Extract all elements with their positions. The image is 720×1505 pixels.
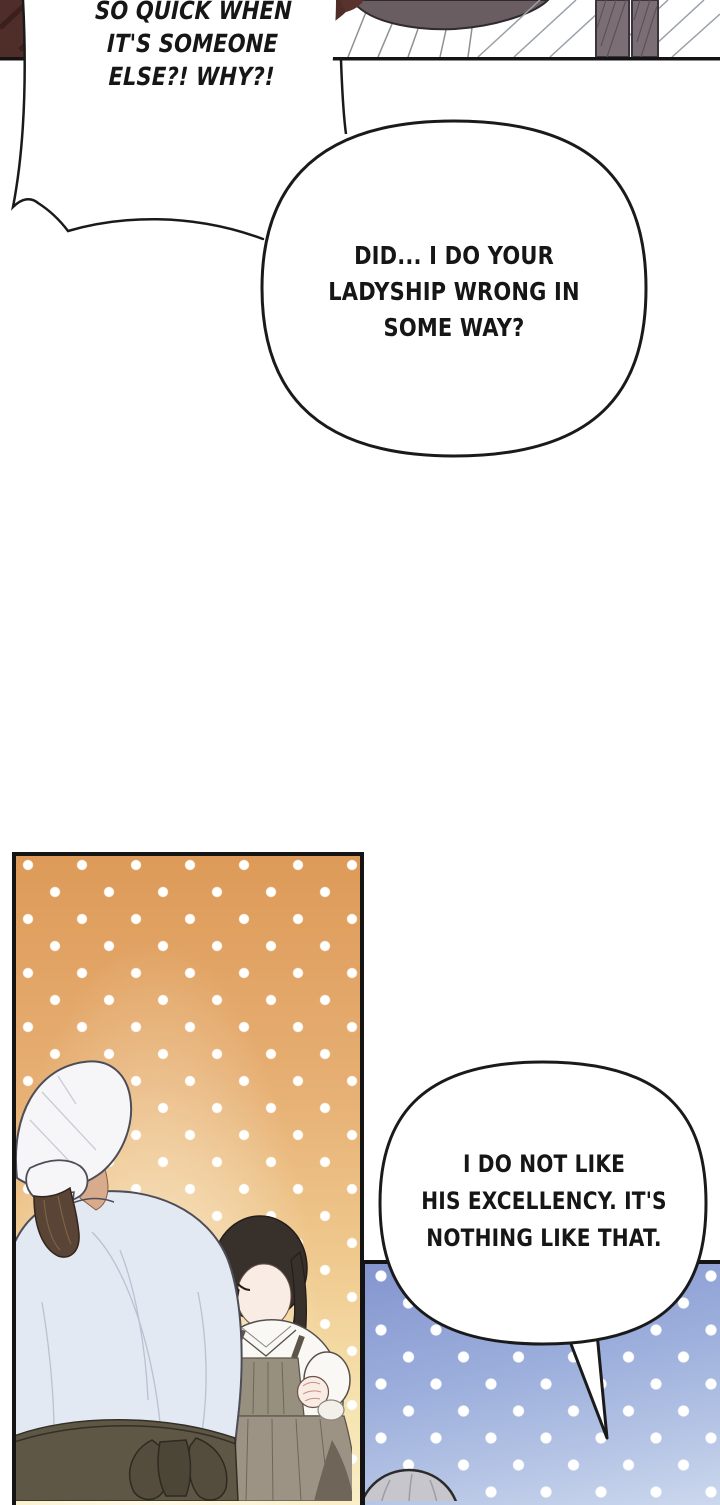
denial-line-2: HIS EXCELLENCY. IT'S — [418, 1183, 670, 1220]
shout-bubble-text: SO QUICK WHEN IT'S SOMEONE ELSE?! WHY?! — [77, 0, 308, 93]
question-bubble-text: DID... I DO YOUR LADYSHIP WRONG IN SOME … — [328, 238, 580, 346]
kitchen-panel — [12, 852, 364, 1505]
denial-bubble-text: I DO NOT LIKE HIS EXCELLENCY. IT'S NOTHI… — [418, 1146, 670, 1257]
shout-line-3: ELSE?! WHY?! — [77, 60, 306, 93]
question-line-1: DID... I DO YOUR — [328, 238, 580, 274]
question-line-2: LADYSHIP WRONG IN — [328, 274, 580, 310]
question-line-3: SOME WAY? — [328, 310, 580, 346]
shout-line-1: SO QUICK WHEN — [79, 0, 308, 27]
shout-line-2: IT'S SOMEONE — [78, 27, 307, 60]
comic-page: { "bubbles": { "shout": { "lines": ["SO … — [0, 0, 720, 1501]
blue-panel — [361, 1260, 720, 1505]
denial-line-3: NOTHING LIKE THAT. — [418, 1220, 670, 1257]
denial-line-1: I DO NOT LIKE — [418, 1146, 670, 1183]
question-bubble-tail — [341, 60, 346, 134]
